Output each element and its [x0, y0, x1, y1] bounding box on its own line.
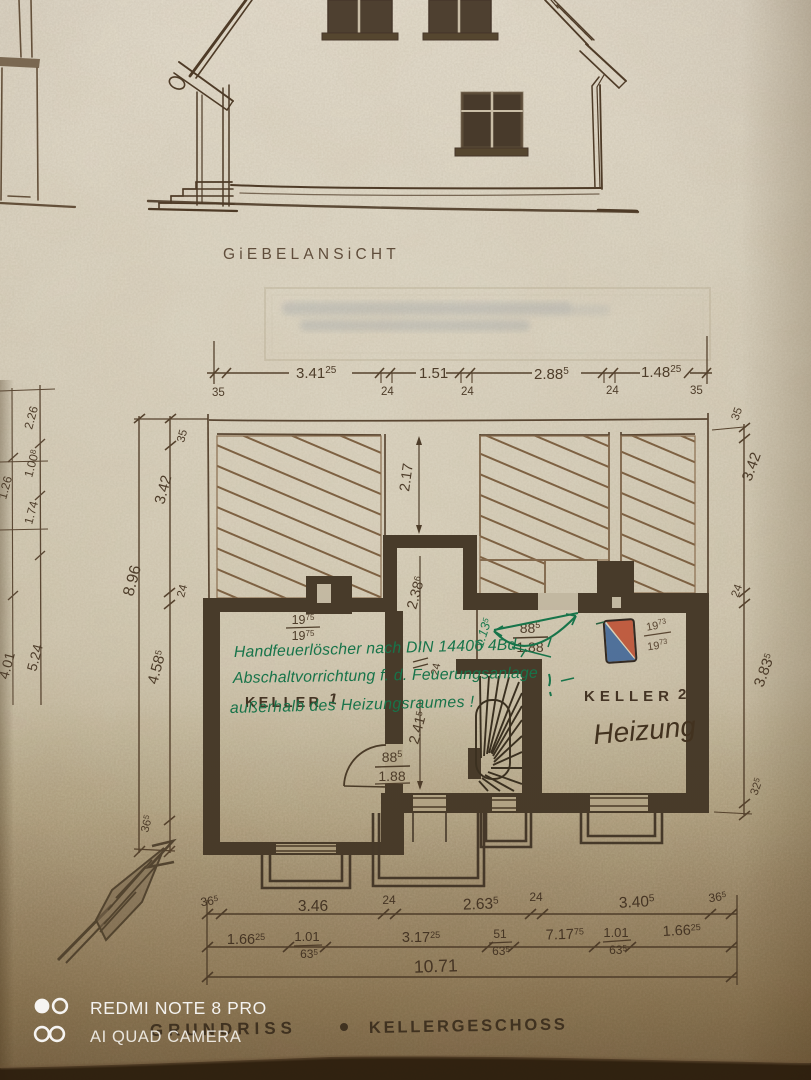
- svg-text:GiEBELANSiCHT: GiEBELANSiCHT: [223, 246, 400, 263]
- svg-text:24: 24: [461, 386, 474, 398]
- svg-text:35: 35: [212, 387, 225, 399]
- svg-text:1.51: 1.51: [419, 365, 448, 382]
- svg-text:24: 24: [606, 385, 619, 397]
- svg-text:35: 35: [690, 385, 703, 397]
- svg-text:24: 24: [381, 386, 394, 398]
- svg-text:REDMI NOTE 8 PRO: REDMI NOTE 8 PRO: [90, 998, 267, 1018]
- svg-text:AI QUAD CAMERA: AI QUAD CAMERA: [90, 1028, 241, 1046]
